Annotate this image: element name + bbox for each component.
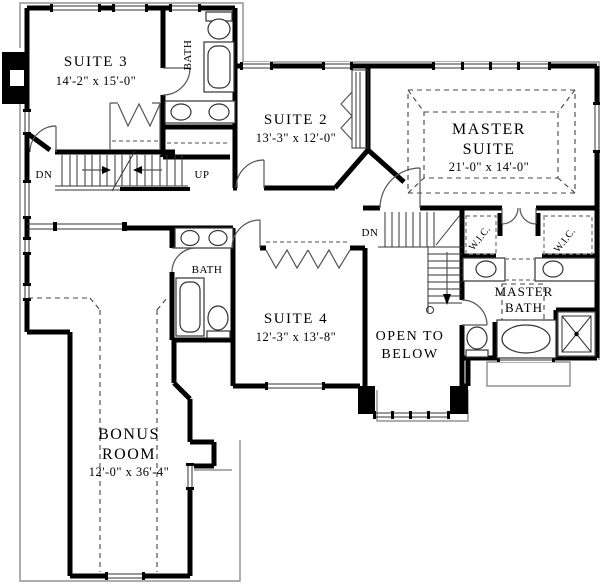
toilet	[208, 19, 230, 39]
sink	[209, 104, 229, 120]
suite2-dims: 13'-3" x 12'-0"	[256, 131, 337, 145]
suite3-dims: 14'-2" x 15'-0"	[56, 74, 137, 88]
bifold-doors-suite4-closet	[266, 250, 350, 268]
shower	[558, 312, 595, 356]
sink	[476, 261, 496, 277]
suite2-label: SUITE 2	[264, 112, 328, 128]
toilet-tank	[207, 331, 230, 338]
door-vestibule-left	[502, 208, 518, 224]
bathtub	[502, 325, 550, 353]
door-toilet-room	[462, 300, 487, 325]
bonus-room-dims: 12'-0" x 36'-4"	[89, 465, 170, 479]
sink	[209, 231, 227, 246]
bay-pier-right	[450, 386, 468, 414]
hall-opening	[27, 222, 127, 231]
sink	[543, 261, 563, 277]
floor-plan-page: SUITE 3 14'-2" x 15'-0" BATH SUITE 2 13'…	[0, 0, 600, 582]
suite3-label: SUITE 3	[64, 54, 128, 70]
wic-left-label: W.I.C.	[467, 224, 493, 253]
master-suite-label-1: MASTER	[452, 121, 526, 138]
master-bath-label-2: BATH	[505, 300, 543, 315]
door-suite4	[232, 220, 260, 248]
sink	[181, 231, 199, 246]
master-bath-label-1: MASTER	[495, 284, 554, 299]
toilet	[208, 306, 228, 330]
toilet-tank	[466, 350, 488, 357]
master-suite-dims: 21'-0" x 14'-0"	[449, 160, 530, 174]
door-bath-upper	[163, 68, 190, 95]
floor-plan: SUITE 3 14'-2" x 15'-0" BATH SUITE 2 13'…	[0, 0, 600, 582]
master-suite-label-2: SUITE	[463, 141, 516, 158]
bath-upper-label: BATH	[182, 40, 194, 71]
bathtub-inner	[180, 282, 200, 332]
stairs-dn2-label: DN	[362, 227, 379, 239]
bonus-room-label-1: BONUS	[98, 426, 160, 443]
open-below-label-1: OPEN TO	[376, 329, 445, 344]
suite4-label: SUITE 4	[264, 311, 328, 327]
door-master-suite	[380, 168, 420, 208]
suite4-dims: 12'-3" x 13'-8"	[256, 330, 337, 344]
door-suite2	[236, 160, 264, 188]
bifold-doors-suite2-closet	[341, 92, 352, 140]
bath-mid-label: BATH	[192, 264, 223, 276]
toilet	[467, 327, 487, 349]
open-below-label-2: BELOW	[381, 347, 438, 362]
stairs-dn-label: DN	[36, 169, 53, 181]
staircase-rear	[378, 212, 462, 314]
bay-pier-left	[358, 386, 375, 414]
bonus-room-label-2: ROOM	[102, 446, 156, 463]
door-vestibule-right	[520, 208, 536, 224]
bathtub-inner	[208, 46, 230, 88]
stairs-up-label: UP	[194, 169, 209, 181]
wic-right-label: W.I.C.	[552, 226, 578, 255]
bifold-doors-suite3-closet	[118, 104, 160, 126]
sink	[171, 104, 191, 120]
door-suite3	[30, 126, 56, 152]
chimney-flue	[10, 70, 24, 86]
